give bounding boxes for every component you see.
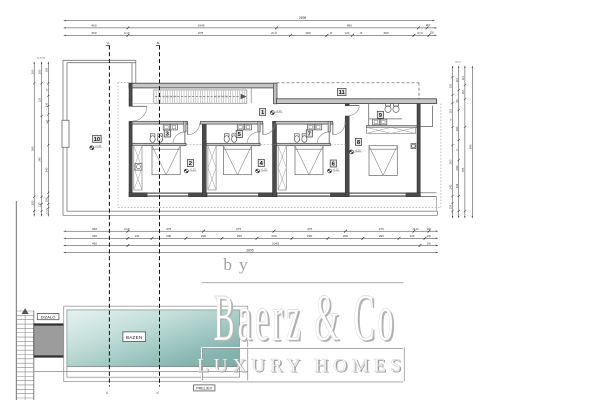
svg-text:150: 150 <box>449 204 453 209</box>
svg-text:460: 460 <box>92 227 97 231</box>
svg-text:115: 115 <box>449 108 453 113</box>
svg-text:705: 705 <box>461 167 465 172</box>
svg-text:150: 150 <box>44 197 48 202</box>
svg-text:100: 100 <box>430 31 435 34</box>
svg-text:120: 120 <box>135 234 140 238</box>
svg-text:940: 940 <box>468 144 472 149</box>
svg-text:460: 460 <box>91 24 96 28</box>
svg-text:7: 7 <box>308 132 311 138</box>
svg-text:240: 240 <box>449 184 453 189</box>
svg-text:100: 100 <box>427 228 432 231</box>
svg-text:460: 460 <box>92 234 97 238</box>
svg-text:990: 990 <box>347 24 352 28</box>
svg-text:LUXURY HOMES: LUXURY HOMES <box>197 355 406 376</box>
svg-text:110: 110 <box>461 89 465 94</box>
svg-text:200: 200 <box>343 234 348 238</box>
svg-text:150: 150 <box>30 200 34 205</box>
svg-text:120: 120 <box>410 234 415 238</box>
svg-text:160: 160 <box>44 67 48 72</box>
svg-text:100: 100 <box>427 235 432 238</box>
svg-text:120: 120 <box>345 31 350 35</box>
svg-text:300: 300 <box>449 159 453 164</box>
svg-text:290: 290 <box>379 234 384 238</box>
svg-text:160: 160 <box>30 69 34 74</box>
svg-text:110: 110 <box>455 77 459 82</box>
svg-text:BL: BL <box>157 41 161 45</box>
svg-text:10: 10 <box>94 137 100 143</box>
svg-text:340: 340 <box>30 146 34 151</box>
svg-text:2045: 2045 <box>272 241 279 245</box>
svg-text:200: 200 <box>201 234 206 238</box>
svg-text:475: 475 <box>236 227 241 231</box>
svg-text:460: 460 <box>91 31 96 35</box>
svg-text:20,10: 20,10 <box>417 33 423 35</box>
svg-text:475: 475 <box>379 227 384 231</box>
svg-text:340: 340 <box>44 167 48 172</box>
svg-text:115: 115 <box>461 75 465 80</box>
svg-text:20,10: 20,10 <box>271 33 277 35</box>
svg-text:150: 150 <box>449 83 453 88</box>
svg-text:345: 345 <box>38 157 42 162</box>
svg-text:345: 345 <box>455 183 459 188</box>
svg-text:100: 100 <box>427 242 432 245</box>
svg-text:10,20,20: 10,20,20 <box>37 58 46 60</box>
svg-text:290: 290 <box>166 234 171 238</box>
svg-text:160: 160 <box>38 69 42 74</box>
svg-text:1945: 1945 <box>198 24 205 28</box>
svg-text:120: 120 <box>38 97 42 102</box>
svg-text:2695: 2695 <box>299 16 307 20</box>
svg-text:VL: VL <box>107 41 111 45</box>
svg-text:480: 480 <box>305 31 310 35</box>
svg-text:460: 460 <box>92 241 97 245</box>
svg-text:PRELJEV: PRELJEV <box>196 387 213 391</box>
svg-text:690: 690 <box>455 165 459 170</box>
svg-text:10x17,5/28: 10x17,5/28 <box>164 94 177 98</box>
svg-text:290: 290 <box>307 234 312 238</box>
svg-text:by: by <box>223 255 254 274</box>
svg-text:475: 475 <box>307 227 312 231</box>
svg-text:2695: 2695 <box>246 248 254 252</box>
svg-text:110: 110 <box>426 23 431 27</box>
svg-text:10 20: 10 20 <box>124 33 130 35</box>
svg-text:390: 390 <box>383 31 388 35</box>
svg-text:11: 11 <box>339 90 346 96</box>
svg-text:200: 200 <box>271 234 276 238</box>
svg-text:475: 475 <box>166 227 171 231</box>
svg-text:20,10: 20,10 <box>455 62 461 64</box>
svg-text:DIZALO: DIZALO <box>41 314 56 319</box>
svg-text:875: 875 <box>198 31 203 35</box>
svg-text:20,10: 20,10 <box>413 229 419 231</box>
svg-text:2: 2 <box>189 161 192 167</box>
svg-text:10,20: 10,20 <box>124 229 130 231</box>
svg-text:295: 295 <box>237 234 242 238</box>
svg-text:10x17,5/28: 10x17,5/28 <box>215 94 228 98</box>
svg-text:Baerz & Co: Baerz & Co <box>213 281 396 355</box>
svg-text:190: 190 <box>455 126 459 131</box>
svg-text:BAZEN: BAZEN <box>126 335 142 340</box>
